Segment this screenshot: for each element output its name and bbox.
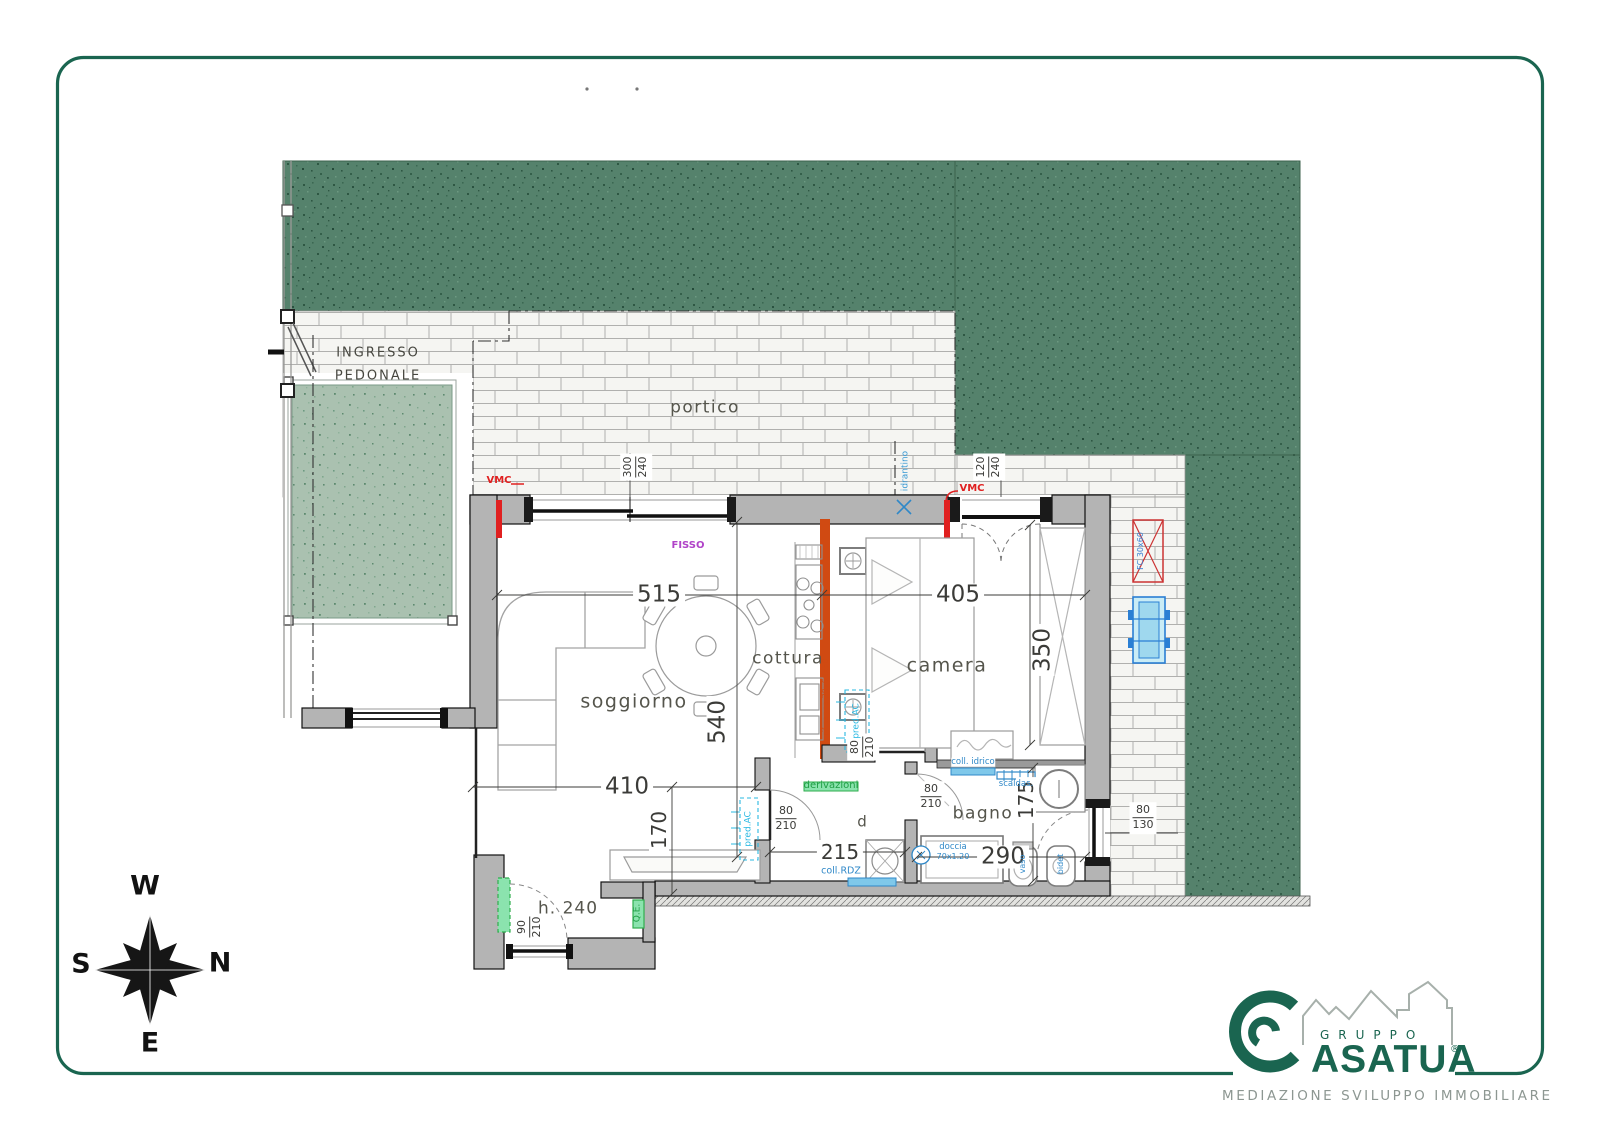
- floor-plan-page: INGRESSO PEDONALE portico soggiorno cott…: [0, 0, 1600, 1131]
- room-label-kitchen: cottura: [752, 651, 824, 668]
- dim-bedroom-depth: 350: [1032, 624, 1055, 676]
- dim-value: 210: [864, 737, 878, 758]
- dim-value: 80: [779, 804, 793, 818]
- dim-value: 130: [1133, 819, 1154, 833]
- dim-entry-door: 90 210: [514, 914, 546, 941]
- paving-right-strip: [1110, 497, 1185, 900]
- bed-bench: [951, 731, 1013, 759]
- dim-value: 120: [974, 457, 988, 478]
- dim-value: 80: [1136, 803, 1150, 817]
- logo-tagline: MEDIAZIONE SVILUPPO IMMOBILIARE: [1222, 1088, 1553, 1104]
- dim-living-width2: 410: [601, 776, 653, 799]
- fisso-label: FISSO: [671, 541, 704, 551]
- shower-label: doccia: [939, 843, 967, 852]
- towel-heater-label: scaldas.: [999, 780, 1033, 789]
- portico-label: portico: [670, 400, 740, 417]
- adjacent-window: [345, 708, 448, 728]
- dim-value: 80: [848, 740, 862, 754]
- compass-west: W: [130, 873, 160, 900]
- room-label-bedroom: camera: [907, 657, 988, 676]
- dim-value: 300: [621, 457, 635, 478]
- dim-living-lower: 170: [649, 807, 669, 853]
- compass-south: S: [71, 951, 90, 978]
- heat-pump-unit: [1128, 597, 1170, 663]
- section-hatch-strip: [655, 896, 1310, 906]
- garden-right: [1185, 455, 1300, 900]
- entrance-label-line2: PEDONALE: [335, 370, 421, 383]
- hydrant-label: idrantino: [902, 451, 911, 491]
- dim-value: 80: [924, 782, 938, 796]
- dim-bedroom-door-window: 120 240: [973, 454, 1005, 481]
- compass-rose: [95, 915, 205, 1025]
- ceiling-height-label: h. 240: [538, 901, 598, 918]
- floor-manifold-label: coll.RDZ: [821, 866, 861, 876]
- floor-plan-drawing: [0, 0, 1600, 1131]
- dim-bathroom-door: 80 210: [918, 781, 945, 813]
- ac-provision-label: pred.AC: [853, 703, 862, 739]
- electric-panel-label: Q.E.: [634, 904, 643, 923]
- garden-top-right: [955, 161, 1300, 455]
- dim-value: 240: [990, 457, 1004, 478]
- logo-c-curl: [1252, 1021, 1276, 1043]
- dim-living-depth: 540: [707, 696, 730, 748]
- garden-side-square: [292, 385, 452, 618]
- logo-c-swirl: [1235, 996, 1295, 1066]
- room-label-hall: d: [857, 815, 867, 830]
- entry-door: [498, 878, 510, 932]
- compass-east: E: [141, 1030, 159, 1057]
- bidet-label: bidet: [1057, 854, 1065, 874]
- flue-label: rif.canna 30x60x50: [822, 658, 830, 735]
- fan-coil-label: FC 30x60: [1137, 532, 1145, 570]
- dim-value: 210: [776, 820, 797, 834]
- branches-label: derivazioni: [804, 781, 859, 791]
- dim-living-width: 515: [633, 584, 685, 607]
- vmc-label: VMC: [486, 476, 511, 486]
- compass-north: N: [209, 950, 232, 977]
- garden-top: [283, 161, 955, 311]
- water-manifold-label: coll. idrico: [951, 758, 995, 767]
- room-label-bathroom: bagno: [953, 806, 1014, 823]
- shower-size-label: 70x1.20: [937, 853, 970, 861]
- dim-value: 210: [921, 798, 942, 812]
- dim-living-door: 80 210: [773, 803, 800, 835]
- room-label-living: soggiorno: [580, 693, 687, 712]
- toilet-label: vaso: [1019, 855, 1027, 874]
- water-manifold-bar: [951, 768, 995, 775]
- entrance-label-line1: INGRESSO: [336, 347, 420, 360]
- dim-living-window: 300 240: [620, 454, 652, 481]
- logo-registered-mark: ®: [1450, 1044, 1460, 1055]
- registration-dot: [585, 87, 588, 90]
- tv-sideboard: [610, 850, 760, 880]
- dim-bathroom-window: 80 130: [1130, 802, 1157, 834]
- floor-manifold-bar: [848, 878, 896, 886]
- registration-dot: [635, 87, 638, 90]
- dim-value: 210: [531, 917, 545, 938]
- vmc-label: VMC: [959, 484, 984, 494]
- dim-value: 240: [637, 457, 651, 478]
- dim-value: 90: [515, 920, 529, 934]
- dim-hall-width: 215: [817, 842, 863, 862]
- side-garden: [283, 373, 473, 633]
- dim-bedroom-width: 405: [932, 584, 984, 607]
- ac-provision-label: pred.AC: [745, 811, 754, 847]
